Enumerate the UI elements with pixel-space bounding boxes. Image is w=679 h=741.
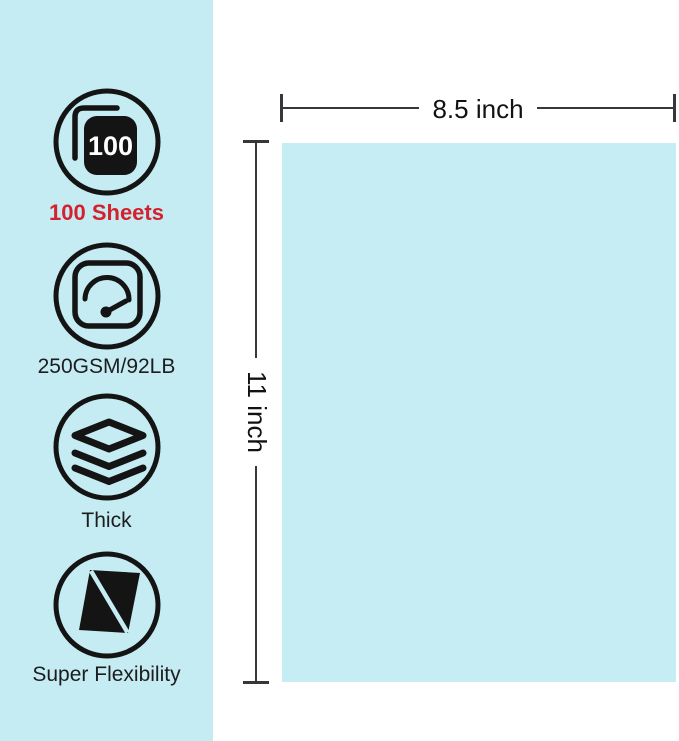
dimension-tick-bottom (243, 681, 269, 684)
feature-flexibility: Super Flexibility (0, 549, 213, 688)
dimension-line-segment (255, 466, 258, 681)
dimension-line-segment (537, 107, 673, 110)
dimension-line-segment (283, 107, 419, 110)
feature-label-thickness: Thick (81, 508, 131, 534)
width-dimension: 8.5 inch (280, 94, 676, 122)
sheets-100-icon: 100 (51, 86, 163, 198)
feature-thickness: Thick (0, 391, 213, 534)
paper-sheet-preview (282, 143, 676, 682)
dimension-tick-right (673, 94, 676, 122)
dimension-line-segment (255, 143, 258, 358)
flexibility-icon (51, 549, 163, 661)
feature-sheet-count: 100 100 Sheets (0, 86, 213, 226)
sheet-count-badge: 100 (87, 131, 132, 161)
feature-label-flexibility: Super Flexibility (32, 662, 180, 688)
feature-paper-weight: 250GSM/92LB (0, 240, 213, 380)
height-dimension-label: 11 inch (244, 371, 270, 453)
thick-layers-icon (51, 391, 163, 503)
feature-label-paper-weight: 250GSM/92LB (38, 354, 176, 380)
weight-gauge-icon (51, 240, 163, 352)
features-panel: 100 100 Sheets 250GSM/92LB Thick (0, 0, 213, 741)
height-dimension: 11 inch (242, 140, 270, 684)
width-dimension-label: 8.5 inch (432, 96, 523, 122)
feature-label-sheet-count: 100 Sheets (49, 200, 164, 226)
